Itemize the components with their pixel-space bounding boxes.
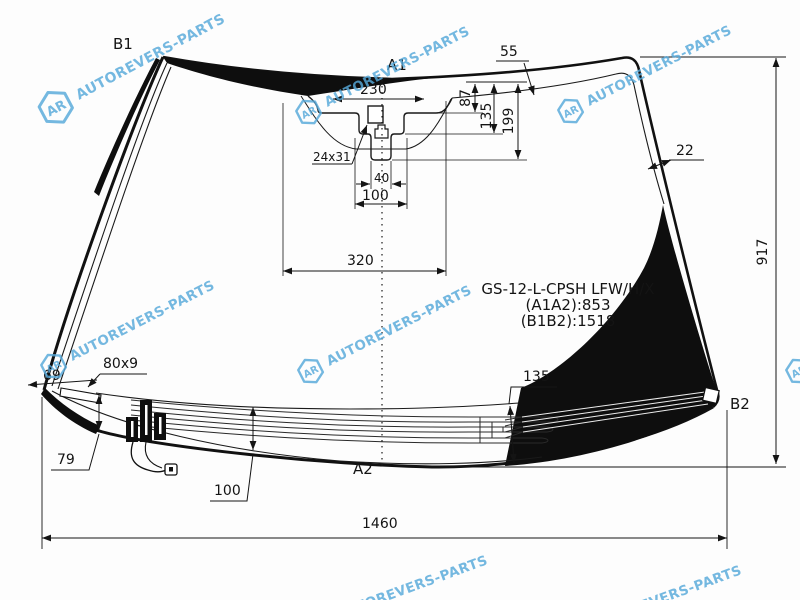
- dim-label-199: 199: [502, 101, 520, 141]
- inner-line-left-1: [52, 63, 167, 386]
- heater-zone-top-line: [96, 393, 519, 409]
- cutout-curve-right: [406, 99, 451, 149]
- dim-label-40: 40: [374, 171, 389, 186]
- dim-label-320: 320: [347, 254, 374, 269]
- wire-serpentine: [480, 417, 503, 443]
- dim-label-79: 79: [57, 453, 75, 468]
- dim-label-69: 69: [43, 369, 61, 384]
- part-info: GS-12-L-CPSH LFW/H/X (A1A2):853 (B1B2):1…: [462, 281, 674, 329]
- dim-label-917: 917: [756, 232, 774, 272]
- inner-line-left-2: [58, 67, 171, 389]
- part-dim-a1a2: (A1A2):853: [462, 297, 674, 313]
- dim-label-55: 55: [500, 45, 518, 60]
- sensor-cutout: [301, 80, 452, 470]
- dim-label-80x9: 80x9: [103, 357, 138, 372]
- frit-band-left: [94, 58, 160, 196]
- glass-left-edge: [44, 57, 163, 390]
- dim-label-100-bottom: 100: [214, 484, 241, 499]
- drawing-svg: [0, 0, 800, 600]
- mirror-button-icon: [375, 125, 388, 138]
- point-label-a2: A2: [353, 462, 373, 477]
- dim-69: [28, 380, 97, 385]
- part-code: GS-12-L-CPSH LFW/H/X: [462, 281, 674, 297]
- point-label-b1: B1: [113, 37, 133, 52]
- dim-label-87: 87: [459, 84, 477, 112]
- heater-wires: [131, 400, 558, 443]
- dim-label-135v: 135: [480, 96, 498, 136]
- dim-label-100-top: 100: [362, 189, 389, 204]
- cutout-curve-left: [301, 96, 356, 149]
- dim-label-22: 22: [676, 144, 694, 159]
- pigtail-wire-2: [145, 442, 162, 468]
- windshield-diagram: B1 A1 A2 B2 55 230 87 135 199 24x31 40 1…: [0, 0, 800, 600]
- side-heater-element: [60, 388, 101, 403]
- point-label-a1: A1: [387, 58, 407, 73]
- part-dim-b1b2: (B1B2):1518: [462, 313, 674, 329]
- heater-connector-right: [703, 388, 720, 404]
- dim-label-135-bottom: 135: [523, 370, 550, 385]
- rain-sensor-window: [368, 106, 383, 123]
- heater-terminal-blocks: [126, 400, 166, 442]
- inner-line-top-right: [452, 73, 664, 204]
- pigtail-plug-pin: [169, 467, 173, 472]
- dim-label-24x31: 24x31: [313, 150, 351, 165]
- point-label-b2: B2: [730, 397, 750, 412]
- dim-label-1460: 1460: [362, 517, 398, 532]
- dim-label-230: 230: [360, 83, 387, 98]
